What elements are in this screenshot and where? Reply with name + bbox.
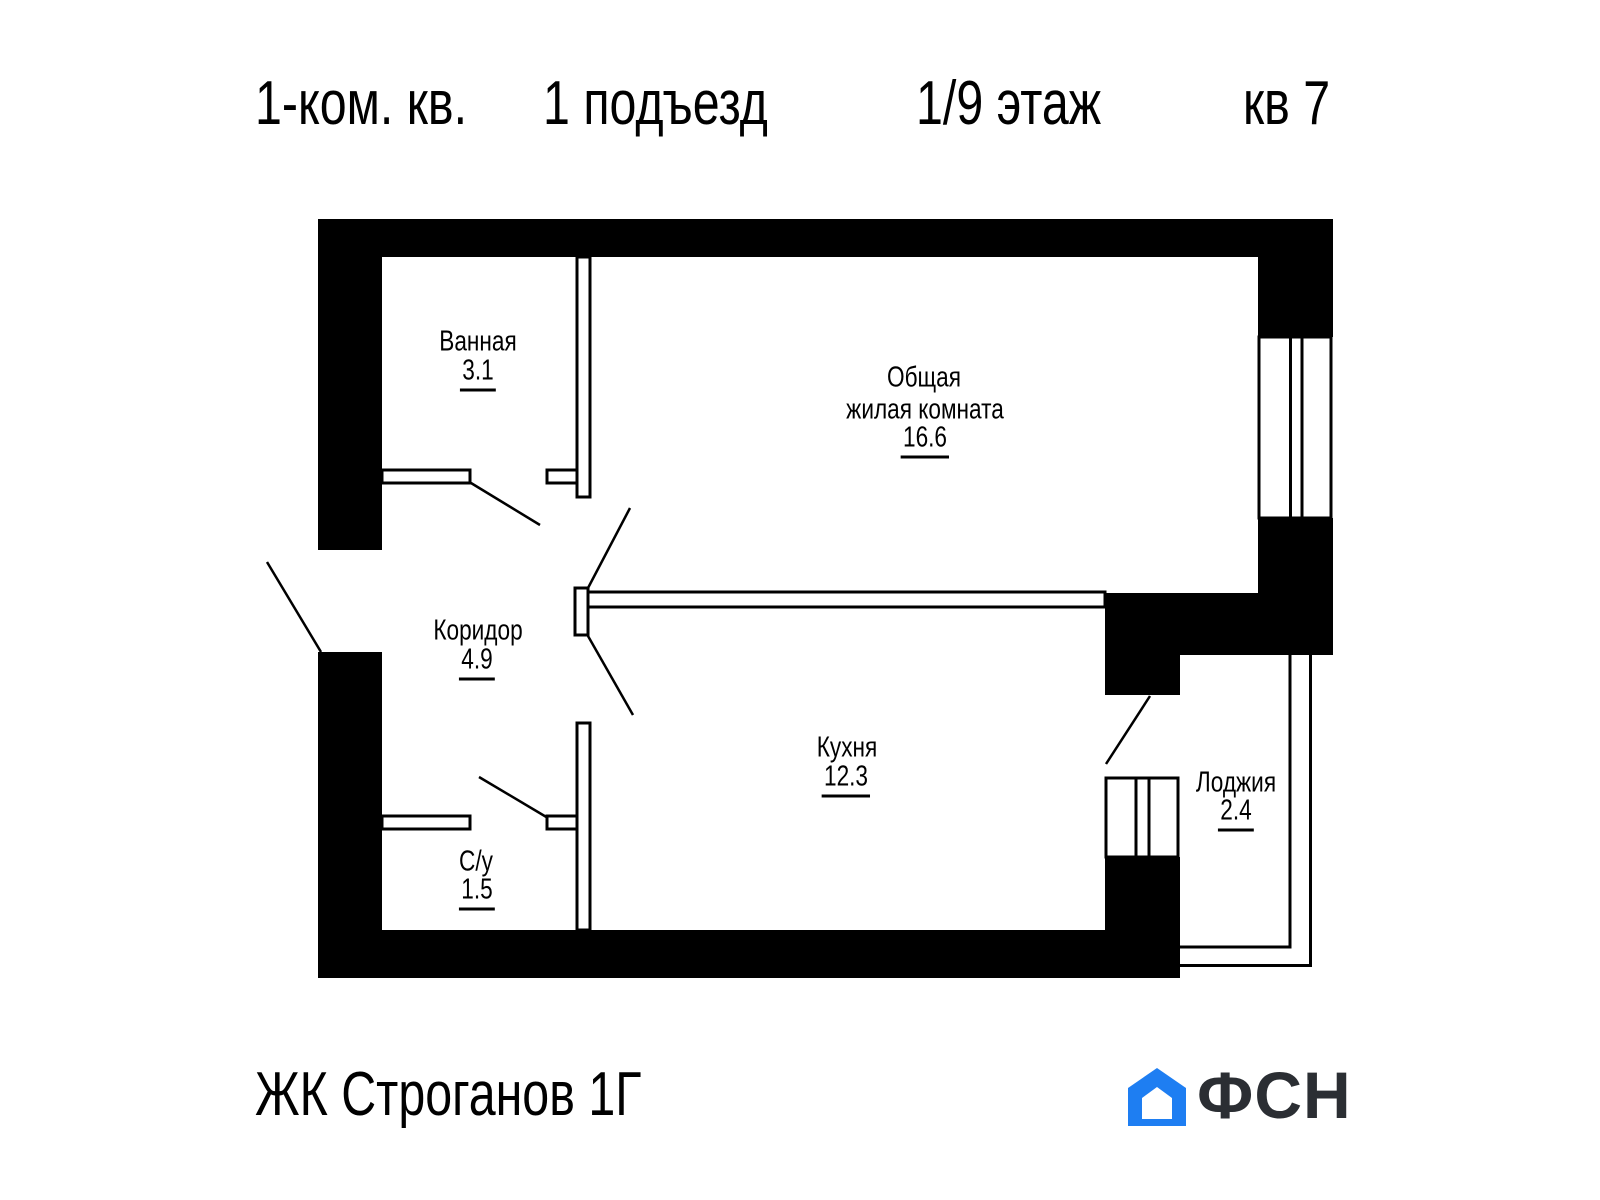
wall-right-upper (1258, 257, 1333, 337)
bathroom-door-swing (471, 483, 540, 525)
living-room-door-swing (588, 508, 630, 588)
living-room-window (1259, 337, 1331, 518)
bathroom-label: Ванная (439, 328, 516, 357)
bathroom-door-stub (547, 470, 577, 483)
complex-name: ЖК Строганов 1Г (255, 1064, 641, 1126)
loggia-label: Лоджия (1196, 769, 1276, 798)
door-swings (267, 483, 1150, 818)
corridor-label: Коридор (433, 617, 522, 646)
logo-text: ФСН (1197, 1062, 1352, 1128)
kitchen-door-swing (588, 636, 633, 715)
kitchen-label: Кухня (817, 734, 878, 763)
wall-kitchen-loggia-connector (1105, 593, 1258, 655)
bathroom-right-wall (577, 257, 590, 497)
kitchen-area: 12.3 (822, 763, 871, 798)
living-room-area: 16.6 (901, 424, 950, 459)
wall-top (318, 219, 1333, 257)
bathroom-bottom-wall (382, 470, 470, 483)
kitchen-window (1106, 778, 1178, 857)
corridor-door-jamb (575, 588, 588, 635)
wc-kitchen-divider (577, 723, 590, 930)
corridor-area: 4.9 (459, 646, 495, 681)
logo-house-icon (1128, 1068, 1186, 1126)
wall-left-lower (318, 652, 382, 978)
wall-left-upper (318, 219, 382, 550)
wc-label: С/у (459, 848, 493, 877)
wall-pier-lower (1105, 857, 1180, 930)
bathroom-area: 3.1 (460, 357, 496, 392)
living-room-label-line2: жилая комната (846, 396, 1004, 425)
wc-top-wall (382, 816, 470, 829)
living-room-label-line1: Общая (887, 364, 961, 393)
wc-area: 1.5 (459, 876, 495, 911)
loggia-area: 2.4 (1218, 797, 1254, 832)
wc-door-stub (547, 816, 578, 829)
wall-bottom (318, 930, 1180, 978)
wall-pier-upper (1105, 655, 1180, 695)
wall-right-lower (1258, 518, 1333, 655)
floorplan-page: { "header": { "apartment_type": "1-ком. … (0, 0, 1600, 1200)
entrance-door-swing (267, 562, 321, 652)
floor-plan-svg (0, 0, 1600, 1200)
balcony-door-swing (1106, 696, 1150, 764)
wc-door-swing (479, 777, 548, 818)
developer-logo: ФСН (1128, 1066, 1352, 1128)
living-kitchen-wall (588, 592, 1105, 607)
